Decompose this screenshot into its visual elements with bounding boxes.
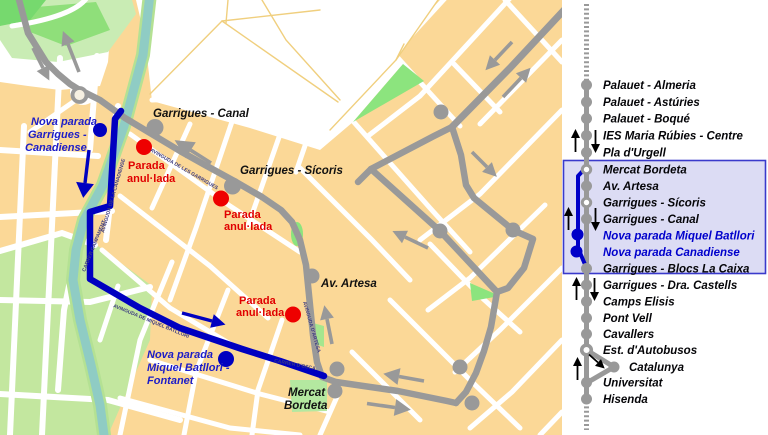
svg-text:Palauet - Boqué: Palauet - Boqué bbox=[603, 114, 691, 126]
svg-text:anul·lada: anul·lada bbox=[236, 307, 285, 319]
svg-text:Pla d'Urgell: Pla d'Urgell bbox=[603, 148, 667, 160]
svg-text:Av. Artesa: Av. Artesa bbox=[320, 278, 377, 290]
svg-text:Mercat Bordeta: Mercat Bordeta bbox=[603, 165, 687, 177]
svg-text:Palauet - Almeria: Palauet - Almeria bbox=[603, 80, 696, 92]
svg-text:Nova parada: Nova parada bbox=[147, 349, 213, 361]
svg-text:Nova parada: Nova parada bbox=[31, 116, 97, 128]
svg-text:Parada: Parada bbox=[224, 209, 262, 221]
svg-text:Garrigues - Canal: Garrigues - Canal bbox=[153, 108, 250, 120]
svg-text:Universitat: Universitat bbox=[603, 378, 664, 390]
svg-text:Fontanet: Fontanet bbox=[147, 375, 195, 387]
svg-text:Nova parada Canadiense: Nova parada Canadiense bbox=[603, 247, 740, 259]
svg-text:Garrigues - Canal: Garrigues - Canal bbox=[603, 214, 700, 226]
svg-text:Cavallers: Cavallers bbox=[603, 329, 654, 341]
svg-text:Garrigues -: Garrigues - bbox=[28, 129, 87, 141]
svg-text:Garrigues - Blocs La Caixa: Garrigues - Blocs La Caixa bbox=[603, 264, 750, 276]
svg-text:Nova parada Miquel Batllori: Nova parada Miquel Batllori bbox=[603, 231, 755, 243]
svg-text:IES Maria Rúbies - Centre: IES Maria Rúbies - Centre bbox=[603, 131, 744, 143]
svg-text:Canadiense: Canadiense bbox=[25, 142, 87, 154]
svg-text:Av. Artesa: Av. Artesa bbox=[602, 181, 659, 193]
svg-text:Garrigues - Sícoris: Garrigues - Sícoris bbox=[603, 198, 706, 210]
svg-text:Garrigues - Sícoris: Garrigues - Sícoris bbox=[240, 165, 343, 177]
svg-text:Est. d'Autobusos: Est. d'Autobusos bbox=[603, 345, 697, 357]
svg-text:Catalunya: Catalunya bbox=[629, 362, 685, 374]
svg-text:Miquel Batllori -: Miquel Batllori - bbox=[147, 362, 230, 374]
svg-text:Palauet - Astúries: Palauet - Astúries bbox=[603, 97, 700, 109]
svg-text:Camps Elisis: Camps Elisis bbox=[603, 297, 675, 309]
svg-text:Garrigues - Dra. Castells: Garrigues - Dra. Castells bbox=[603, 280, 737, 292]
svg-text:Parada: Parada bbox=[128, 160, 166, 172]
svg-text:Bordeta: Bordeta bbox=[284, 400, 328, 412]
svg-text:Parada: Parada bbox=[239, 295, 277, 307]
svg-text:Mercat: Mercat bbox=[288, 387, 326, 399]
svg-text:anul·lada: anul·lada bbox=[127, 173, 176, 185]
svg-text:Hisenda: Hisenda bbox=[603, 394, 648, 406]
svg-text:Pont Vell: Pont Vell bbox=[603, 313, 653, 325]
svg-text:anul·lada: anul·lada bbox=[224, 221, 273, 233]
